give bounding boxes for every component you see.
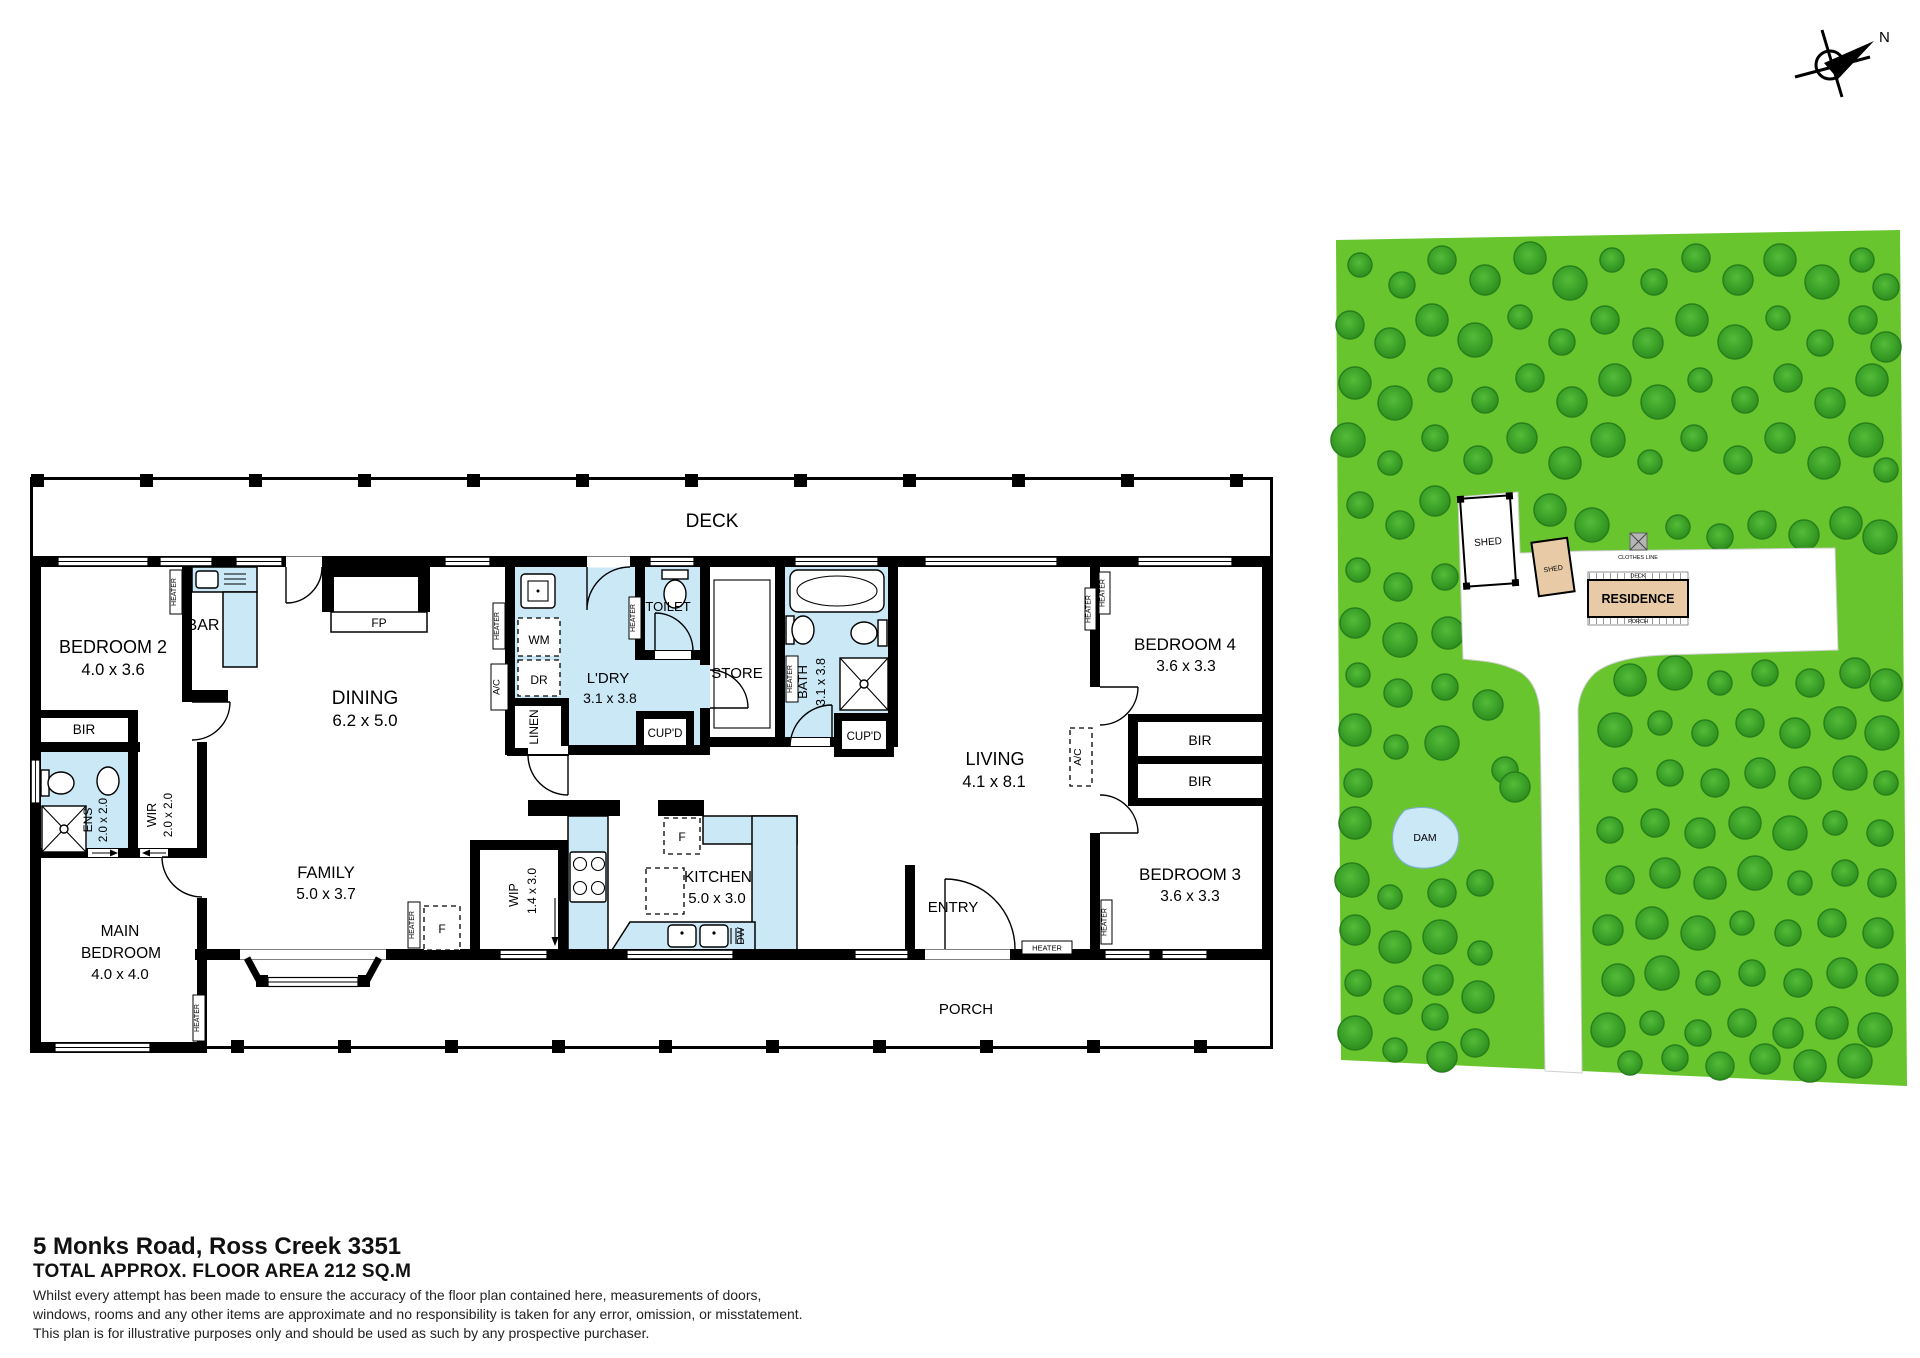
tree-icon [1614, 664, 1646, 696]
tree-icon [1863, 520, 1897, 554]
tree-icon [1600, 248, 1624, 272]
tree-icon [1641, 385, 1675, 419]
tree-icon [1384, 679, 1412, 707]
tree-icon [1650, 858, 1680, 888]
bath-label: BATH [795, 665, 810, 699]
tree-icon [1688, 368, 1712, 392]
tree-icon [1591, 306, 1619, 334]
tree-icon [1641, 269, 1667, 295]
living-dims: 4.1 x 8.1 [962, 773, 1025, 791]
dining-dims: 6.2 x 5.0 [332, 711, 397, 730]
heater-label-6: HEATER [1100, 579, 1107, 607]
tree-icon [1718, 325, 1752, 359]
entry-label: ENTRY [928, 899, 979, 916]
tree-icon [1591, 1013, 1625, 1047]
wip-dims: 1.4 x 3.0 [525, 868, 539, 914]
tree-icon [1461, 1029, 1489, 1057]
tree-icon [1593, 915, 1623, 945]
tree-icon [1379, 931, 1411, 963]
tree-icon [1462, 981, 1494, 1013]
residence-label: RESIDENCE [1602, 592, 1675, 606]
tree-icon [1707, 524, 1733, 550]
tree-icon [1824, 707, 1856, 739]
store-label: STORE [711, 665, 762, 682]
laundry-label: L'DRY [587, 670, 630, 687]
tree-icon [1692, 720, 1718, 746]
tree-icon [1685, 818, 1715, 848]
site-plan: DAM SHED SHED CLOTHES LINE DECK [1331, 230, 1907, 1086]
tree-icon [1345, 970, 1371, 996]
wip-label: WIP [507, 883, 521, 907]
tree-icon [1658, 656, 1692, 690]
tree-icon [1774, 364, 1802, 392]
tree-icon [1775, 920, 1801, 946]
tree-icon [1745, 758, 1775, 788]
shed-2: SHED [1531, 538, 1574, 596]
tree-icon [1701, 769, 1729, 797]
tree-icon [1738, 856, 1772, 890]
tree-icon [1739, 960, 1765, 986]
tree-icon [1425, 726, 1459, 760]
tree-icon [1780, 718, 1810, 748]
tree-icon [1863, 918, 1893, 948]
tree-icon [1788, 871, 1812, 895]
tree-icon [1557, 387, 1587, 417]
wet-areas [41, 567, 888, 950]
tree-icon [1815, 388, 1845, 418]
tree-icon [1640, 1011, 1664, 1035]
disclaimer-line-3: This plan is for illustrative purposes o… [33, 1325, 649, 1341]
tree-icon [1606, 866, 1634, 894]
bir-label-bed2: BIR [73, 722, 96, 737]
tree-icon [1508, 305, 1532, 329]
tree-icon [1773, 816, 1807, 850]
linen-label: LINEN [527, 709, 541, 744]
tree-icon [1470, 265, 1500, 295]
bedroom3-dims: 3.6 x 3.3 [1160, 888, 1219, 905]
porch-rail [205, 960, 1273, 1053]
tree-icon [1856, 364, 1888, 396]
plan-canvas: DAM SHED SHED CLOTHES LINE DECK [0, 0, 1920, 1358]
tree-icon [1384, 986, 1412, 1014]
tree-icon [1420, 486, 1450, 516]
tree-icon [1694, 867, 1726, 899]
tree-icon [1428, 879, 1456, 907]
wir-dims: 2.0 x 2.0 [163, 793, 175, 837]
tree-icon [1827, 958, 1857, 988]
tree-icon [1340, 915, 1370, 945]
tree-icon [1340, 608, 1370, 638]
tree-icon [1838, 1044, 1872, 1078]
tree-icon [1676, 304, 1708, 336]
tree-icon [1378, 885, 1402, 909]
bay-window [240, 950, 386, 988]
bedroom4-label: BEDROOM 4 [1134, 635, 1236, 654]
tree-icon [1832, 860, 1858, 886]
tree-icon [1682, 244, 1710, 272]
tree-icon [1347, 492, 1373, 518]
tree-icon [1849, 423, 1883, 457]
tree-icon [1553, 266, 1587, 300]
tree-icon [1685, 1020, 1711, 1046]
tree-icon [1534, 494, 1566, 526]
tree-icon [1724, 446, 1752, 474]
tree-icon [1805, 265, 1839, 299]
heater-label-5: HEATER [1086, 595, 1093, 623]
wir-label: WIR [145, 803, 159, 827]
heater-label-3: HEATER [630, 604, 637, 632]
tree-icon [1389, 272, 1415, 298]
tree-icon [1432, 674, 1458, 700]
tree-icon [1645, 956, 1679, 990]
tree-icon [1384, 573, 1412, 601]
wm-label: WM [528, 633, 549, 647]
family-label: FAMILY [297, 864, 354, 882]
fireplace-label: FP [371, 616, 386, 630]
clothes-line-label: CLOTHES LINE [1618, 555, 1658, 561]
bar-label: BAR [187, 617, 220, 634]
address-title: 5 Monks Road, Ross Creek 3351 [33, 1233, 401, 1261]
tree-icon [1648, 711, 1672, 735]
fridge-label-2: F [678, 830, 685, 844]
tree-icon [1427, 1042, 1457, 1072]
heater-label-4: HEATER [787, 665, 794, 693]
site-deck-label: DECK [1630, 574, 1646, 580]
tree-icon [1432, 617, 1464, 649]
tree-icon [1383, 623, 1417, 657]
tree-icon [1867, 820, 1893, 846]
tree-icon [1766, 306, 1790, 330]
tree-icon [1849, 306, 1877, 334]
tree-icon [1748, 511, 1776, 539]
tree-icon [1794, 1050, 1826, 1082]
cupboard-label-1: CUP'D [648, 728, 683, 740]
site-residence: DECK PORCH RESIDENCE [1588, 572, 1688, 625]
ens-dims: 2.0 x 2.0 [98, 798, 110, 842]
tree-icon [1432, 564, 1458, 590]
tree-icon [1472, 387, 1498, 413]
heater-label-entry: HEATER [1032, 944, 1062, 953]
bedroom4-dims: 3.6 x 3.3 [1156, 658, 1215, 675]
tree-icon [1871, 332, 1901, 362]
tree-icon [1789, 767, 1821, 799]
tree-icon [1344, 769, 1372, 797]
tree-icon [1458, 323, 1492, 357]
tree-icon [1732, 387, 1758, 413]
tree-icon [1339, 714, 1371, 746]
disclaimer-line-2: windows, rooms and any other items are a… [33, 1306, 803, 1322]
tree-icon [1339, 367, 1371, 399]
tree-icon [1500, 772, 1530, 802]
tree-icon [1386, 511, 1414, 539]
tree-icon [1830, 507, 1862, 539]
tree-icon [1636, 907, 1668, 939]
shed-1: SHED [1457, 492, 1519, 590]
tree-icon [1331, 423, 1365, 457]
bir-label-2: BIR [1188, 773, 1211, 789]
cupboard-label-2: CUP'D [847, 731, 882, 743]
heater-label-8: HEATER [409, 911, 416, 939]
tree-icon [1335, 863, 1369, 897]
tree-icon [1384, 735, 1408, 759]
tree-icon [1514, 242, 1546, 274]
dining-label: DINING [332, 688, 399, 709]
tree-icon [1873, 274, 1899, 300]
tree-icon [1807, 330, 1833, 356]
tree-icon [1507, 423, 1537, 453]
main-bedroom-line1: MAIN [101, 923, 140, 940]
tree-icon [1597, 817, 1623, 843]
tree-icon [1416, 304, 1448, 336]
tree-icon [1681, 916, 1715, 950]
site-porch-label: PORCH [1628, 619, 1648, 625]
tree-icon [1866, 964, 1898, 996]
tree-icon [1865, 716, 1899, 750]
porch-label: PORCH [939, 1001, 993, 1018]
tree-icon [1375, 328, 1405, 358]
tree-icon [1339, 807, 1371, 839]
tree-icon [1633, 328, 1663, 358]
tree-icon [1729, 807, 1761, 839]
tree-icon [1773, 1018, 1803, 1048]
tree-icon [1423, 920, 1457, 954]
tree-icon [1816, 1007, 1848, 1039]
tree-icon [1858, 1013, 1892, 1047]
tree-icon [1818, 909, 1846, 937]
dam-label: DAM [1413, 832, 1436, 844]
tree-icon [1666, 515, 1690, 539]
tree-icon [1662, 1045, 1688, 1071]
disclaimer-line-1: Whilst every attempt has been made to en… [33, 1287, 761, 1303]
tree-icon [1796, 669, 1824, 697]
tree-icon [1575, 508, 1609, 542]
tree-icon [1378, 386, 1412, 420]
tree-icon [1599, 364, 1631, 396]
bedroom2-label: BEDROOM 2 [59, 637, 167, 657]
tree-icon [1752, 660, 1778, 686]
ac-label-2: A/C [1072, 748, 1084, 766]
toilet-label: TOILET [645, 599, 690, 614]
ens-label: ENS [81, 808, 95, 833]
tree-icon [1874, 771, 1898, 795]
kitchen-label: KITCHEN [684, 869, 752, 886]
dw-label: DW [735, 927, 747, 945]
bedroom2-dims: 4.0 x 3.6 [81, 661, 144, 679]
heater-label-9: HEATER [194, 1004, 201, 1032]
tree-icon [1736, 709, 1764, 737]
family-dims: 5.0 x 3.7 [296, 886, 355, 903]
tree-icon [1706, 1052, 1734, 1080]
tree-icon [1681, 425, 1707, 451]
tree-icon [1723, 265, 1753, 295]
tree-icon [1765, 423, 1795, 453]
heater-label-2: HEATER [494, 612, 501, 640]
tree-icon [1613, 768, 1637, 792]
tree-icon [1468, 941, 1492, 965]
tree-icon [1641, 809, 1669, 837]
tree-icon [1823, 811, 1847, 835]
tree-icon [1696, 971, 1720, 995]
heater-label-1: HEATER [171, 578, 178, 606]
tree-icon [1516, 364, 1544, 392]
tree-icon [1840, 658, 1870, 688]
tree-icon [1383, 1038, 1407, 1062]
tree-icon [1784, 969, 1812, 997]
bath-dims: 3.1 x 3.8 [814, 658, 828, 706]
dr-label: DR [530, 673, 548, 687]
bir-label-1: BIR [1188, 732, 1211, 748]
tree-icon [1591, 423, 1625, 457]
main-bedroom-line2: BEDROOM [81, 945, 161, 962]
ac-label-1: A/C [492, 679, 503, 695]
bedroom3-label: BEDROOM 3 [1139, 865, 1241, 884]
tree-icon [1378, 451, 1402, 475]
deck-rail [30, 474, 1273, 556]
kitchen-dims: 5.0 x 3.0 [688, 890, 746, 907]
tree-icon [1428, 368, 1452, 392]
shed-1-label: SHED [1474, 536, 1502, 549]
laundry-dims: 3.1 x 3.8 [583, 690, 637, 706]
tree-icon [1428, 246, 1456, 274]
tree-icon [1850, 248, 1874, 272]
tree-icon [1422, 425, 1448, 451]
tree-icon [1728, 1009, 1756, 1037]
fridge-label-1: F [438, 922, 445, 936]
floorplan-page: DAM SHED SHED CLOTHES LINE DECK [0, 0, 1920, 1358]
tree-icon [1730, 911, 1754, 935]
tree-icon [1336, 311, 1364, 339]
deck-label: DECK [686, 511, 739, 532]
floor-area-subtitle: TOTAL APPROX. FLOOR AREA 212 SQ.M [33, 1261, 411, 1283]
tree-icon [1464, 446, 1492, 474]
tree-icon [1808, 447, 1840, 479]
tree-icon [1338, 1016, 1372, 1050]
tree-icon [1874, 458, 1898, 482]
tree-icon [1348, 253, 1372, 277]
tree-icon [1750, 1044, 1780, 1074]
tree-icon [1638, 450, 1662, 474]
compass-north-label: N [1879, 29, 1890, 46]
heater-label-7: HEATER [1102, 908, 1109, 936]
compass-icon: N [1795, 29, 1890, 97]
tree-icon [1598, 713, 1632, 747]
tree-icon [1346, 663, 1370, 687]
tree-icon [1467, 870, 1493, 896]
tree-icon [1870, 669, 1902, 701]
tree-icon [1549, 447, 1581, 479]
tree-icon [1789, 520, 1819, 550]
tree-icon [1602, 964, 1634, 996]
tree-icon [1868, 869, 1896, 897]
tree-icon [1618, 1051, 1642, 1075]
tree-icon [1833, 756, 1867, 790]
tree-icon [1657, 760, 1683, 786]
living-label: LIVING [965, 749, 1024, 769]
tree-icon [1346, 558, 1370, 582]
main-bedroom-dims: 4.0 x 4.0 [91, 966, 149, 983]
tree-icon [1423, 965, 1453, 995]
tree-icon [1422, 1004, 1448, 1030]
tree-icon [1708, 671, 1732, 695]
tree-icon [1473, 690, 1503, 720]
tree-icon [1549, 329, 1575, 355]
tree-icon [1764, 244, 1796, 276]
